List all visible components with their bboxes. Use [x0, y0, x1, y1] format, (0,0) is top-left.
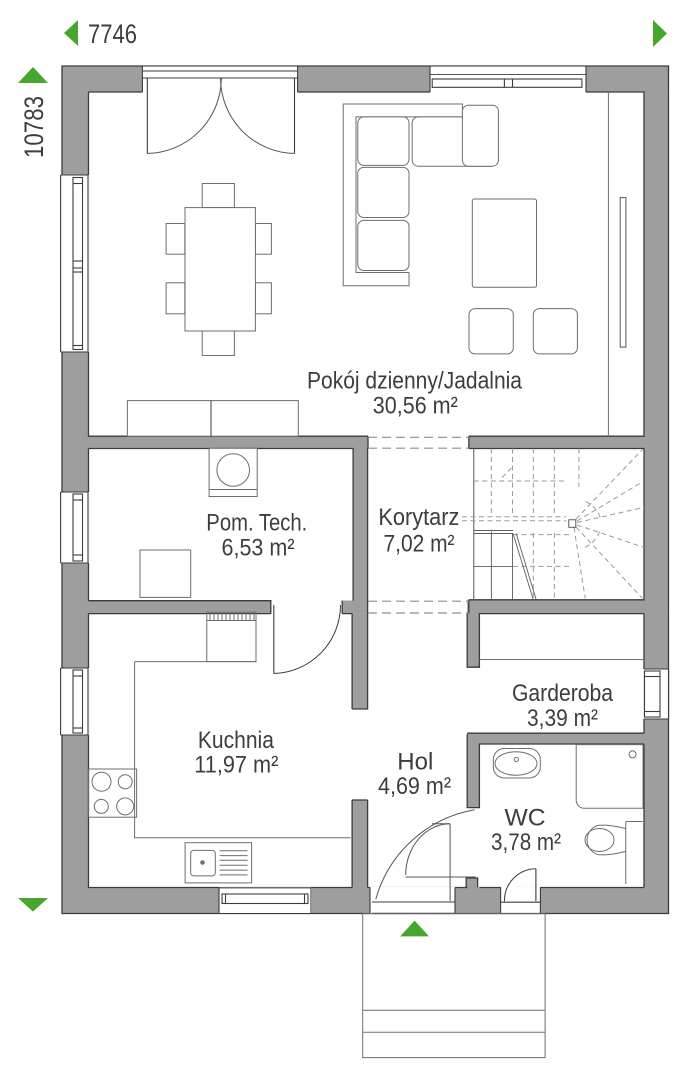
svg-text:Hol: Hol	[397, 749, 433, 776]
svg-text:3,39 m²: 3,39 m²	[527, 705, 598, 732]
svg-text:6,53 m²: 6,53 m²	[222, 535, 295, 562]
svg-text:Kuchnia: Kuchnia	[198, 727, 275, 754]
svg-text:Garderoba: Garderoba	[512, 680, 614, 707]
svg-text:7,02 m²: 7,02 m²	[384, 531, 455, 558]
svg-text:Korytarz: Korytarz	[378, 504, 459, 531]
svg-text:WC: WC	[505, 805, 546, 832]
svg-text:11,97 m²: 11,97 m²	[194, 752, 278, 779]
svg-text:30,56 m²: 30,56 m²	[373, 393, 458, 420]
svg-text:4,69 m²: 4,69 m²	[378, 773, 451, 800]
svg-text:10783: 10783	[19, 96, 49, 158]
svg-text:Pom. Tech.: Pom. Tech.	[206, 510, 307, 537]
svg-text:7746: 7746	[88, 19, 137, 49]
svg-text:Pokój dzienny/Jadalnia: Pokój dzienny/Jadalnia	[307, 368, 523, 395]
svg-text:3,78 m²: 3,78 m²	[491, 829, 561, 856]
